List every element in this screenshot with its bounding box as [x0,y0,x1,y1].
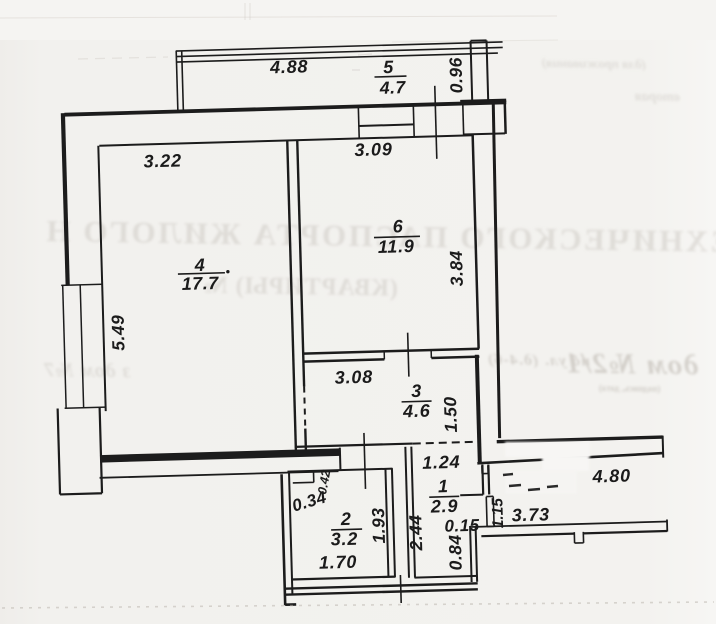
svg-text:1.93: 1.93 [368,507,389,544]
svg-text:6: 6 [392,216,404,236]
svg-text:3: 3 [411,381,422,401]
svg-text:17.7: 17.7 [181,273,219,294]
svg-text:1.24: 1.24 [422,452,461,473]
svg-text:4.6: 4.6 [402,401,431,422]
svg-text:0.15: 0.15 [444,516,480,536]
svg-text:5: 5 [383,57,395,77]
svg-text:5.49: 5.49 [108,314,129,351]
svg-text:2.9: 2.9 [430,496,459,517]
svg-text:1.50: 1.50 [440,396,461,433]
svg-text:4.88: 4.88 [269,56,309,77]
svg-text:0.84: 0.84 [445,534,466,571]
svg-text:4.7: 4.7 [379,77,407,98]
svg-text:3.22: 3.22 [143,150,182,171]
svg-text:4.80: 4.80 [591,466,631,487]
svg-text:4: 4 [193,255,205,275]
svg-text:1.70: 1.70 [319,552,358,573]
svg-text:0.96: 0.96 [445,57,466,94]
svg-text:11.9: 11.9 [378,236,415,257]
svg-text:(подпись, дата): (подпись, дата) [599,383,661,394]
svg-text:3.84: 3.84 [446,250,467,287]
svg-text:3.2: 3.2 [330,529,358,550]
svg-text:з дом №7: з дом №7 [43,359,131,382]
svg-text:3.73: 3.73 [511,504,550,525]
svg-text:2.44: 2.44 [405,514,426,552]
svg-text:1.15: 1.15 [489,498,507,529]
svg-text:(для проживания): (для проживания) [541,55,646,72]
svg-text:3.08: 3.08 [334,367,373,388]
svg-text:3.09: 3.09 [354,139,393,160]
svg-text:1: 1 [438,476,449,496]
svg-text:2: 2 [340,509,352,529]
svg-text:вторая: вторая [635,89,680,105]
svg-text:дом №2/1: дом №2/1 [564,347,699,381]
